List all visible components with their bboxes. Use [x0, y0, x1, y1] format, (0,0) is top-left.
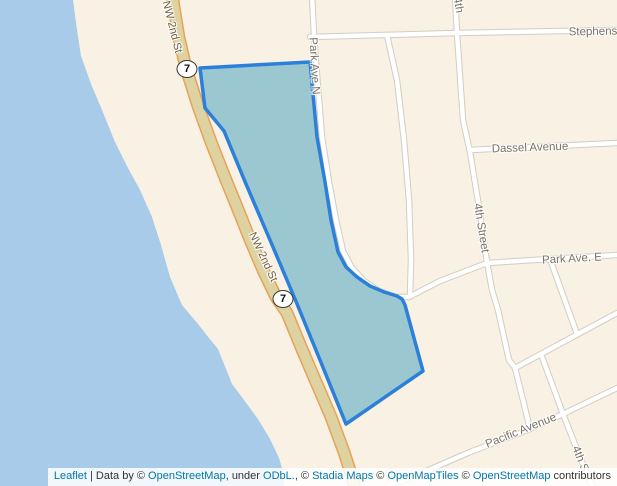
- stadia-maps-link[interactable]: Stadia Maps: [312, 470, 373, 482]
- odbl-link[interactable]: ODbL.: [263, 470, 295, 482]
- openstreetmap-link[interactable]: OpenStreetMap: [148, 470, 226, 482]
- attribution-text: , ©: [295, 470, 312, 482]
- map-tile-layer: [0, 0, 617, 486]
- attribution-text: , under: [226, 470, 263, 482]
- attribution-text: ©: [373, 470, 387, 482]
- road-block: [550, 259, 577, 334]
- openstreetmap-link-2[interactable]: OpenStreetMap: [473, 470, 551, 482]
- highway-7-shield: 7: [273, 290, 294, 308]
- highway-7-number: 7: [184, 63, 190, 75]
- leaflet-map[interactable]: 7 7 NW 2nd St NW 2nd St Park Ave N 4th 4…: [0, 0, 617, 486]
- road-park-ave-n-casing: [312, 0, 617, 297]
- attribution-text: ©: [459, 470, 473, 482]
- attribution-bar: Leaflet | Data by © OpenStreetMap, under…: [48, 468, 617, 486]
- highway-7-shield: 7: [177, 60, 198, 78]
- road-diag: [515, 313, 617, 368]
- leaflet-link[interactable]: Leaflet: [54, 470, 87, 482]
- road-park-ave-n: [312, 0, 617, 297]
- attribution-text: contributors: [550, 470, 611, 482]
- openmaptiles-link[interactable]: OpenMapTiles: [387, 470, 458, 482]
- highway-7-number: 7: [280, 293, 286, 305]
- road-connector: [387, 35, 411, 295]
- attribution-text: | Data by ©: [87, 470, 148, 482]
